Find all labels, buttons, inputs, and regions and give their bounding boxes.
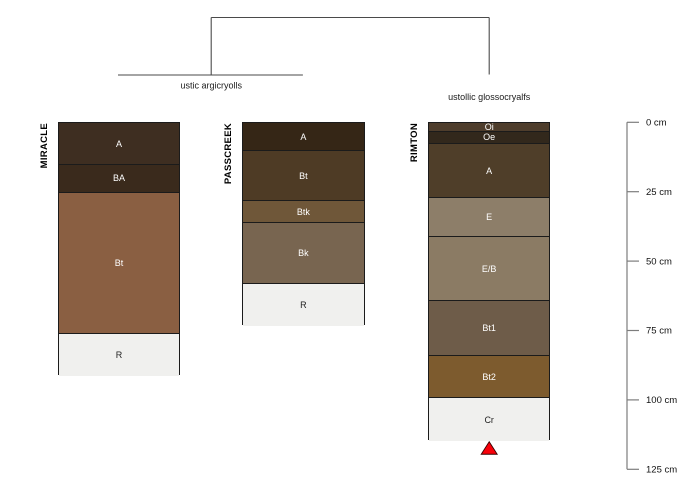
depth-axis-tick-label: 0 cm bbox=[646, 118, 667, 129]
horizon-label: Bt2 bbox=[482, 373, 496, 381]
horizon-label: E/B bbox=[482, 265, 497, 273]
horizon-rect-miracle-a: A bbox=[59, 123, 180, 165]
figure-canvas: ustic argicryollsustollic glossocryalfs0… bbox=[0, 0, 700, 500]
horizon-label: E bbox=[486, 213, 492, 221]
horizon-rect-rimton-a: A bbox=[429, 144, 550, 198]
horizon-rect-passcreek-bk: Bk bbox=[243, 223, 364, 284]
profile-name-label-rimton: RIMTON bbox=[409, 123, 421, 162]
depth-axis-tick-label: 100 cm bbox=[646, 395, 677, 406]
horizon-label: Bt bbox=[299, 172, 308, 180]
horizon-rect-rimton-e: E bbox=[429, 198, 550, 237]
depth-axis-tick-label: 125 cm bbox=[646, 465, 677, 476]
horizon-rect-passcreek-r: R bbox=[243, 284, 364, 326]
horizon-label: A bbox=[116, 140, 122, 148]
horizon-label: A bbox=[486, 167, 492, 175]
depth-axis-tick-label: 25 cm bbox=[646, 187, 672, 198]
horizon-label: Cr bbox=[484, 416, 494, 424]
horizon-label: Bt1 bbox=[482, 324, 496, 332]
horizon-rect-rimton-oi: Oi bbox=[429, 123, 550, 131]
horizon-rect-passcreek-bt: Bt bbox=[243, 151, 364, 201]
horizon-label: R bbox=[116, 351, 123, 359]
dendrogram-group-label: ustic argicryolls bbox=[180, 81, 242, 91]
horizon-label: R bbox=[300, 301, 307, 309]
horizon-label: Btk bbox=[297, 208, 310, 216]
dendrogram-group-label: ustollic glossocryalfs bbox=[448, 92, 531, 102]
profile-name-label-miracle: MIRACLE bbox=[39, 123, 51, 168]
horizon-rect-rimton-oe: Oe bbox=[429, 132, 550, 144]
depth-axis-tick-label: 50 cm bbox=[646, 256, 672, 267]
horizon-label: Oe bbox=[483, 133, 495, 141]
profile-column-rimton: OiOeAEE/BBt1Bt2Cr bbox=[428, 122, 551, 440]
profile-column-passcreek: ABtBtkBkR bbox=[242, 122, 365, 325]
horizon-rect-miracle-r: R bbox=[59, 334, 180, 376]
horizon-rect-miracle-ba: BA bbox=[59, 165, 180, 193]
horizon-rect-passcreek-a: A bbox=[243, 123, 364, 151]
horizon-label: Bt bbox=[115, 259, 124, 267]
horizon-label: Oi bbox=[485, 123, 494, 131]
horizon-label: A bbox=[300, 133, 306, 141]
horizon-rect-passcreek-btk: Btk bbox=[243, 201, 364, 223]
depth-axis-tick-label: 75 cm bbox=[646, 326, 672, 337]
horizon-rect-miracle-bt: Bt bbox=[59, 193, 180, 335]
horizon-rect-rimton-bt2: Bt2 bbox=[429, 356, 550, 398]
restriction-marker-triangle bbox=[481, 442, 497, 455]
horizon-rect-rimton-eb: E/B bbox=[429, 237, 550, 301]
horizon-rect-rimton-cr: Cr bbox=[429, 398, 550, 441]
profile-name-label-passcreek: PASSCREEK bbox=[223, 123, 235, 184]
horizon-label: BA bbox=[113, 174, 125, 182]
profile-column-miracle: ABABtR bbox=[58, 122, 181, 375]
horizon-rect-rimton-bt1: Bt1 bbox=[429, 301, 550, 357]
horizon-label: Bk bbox=[298, 249, 309, 257]
